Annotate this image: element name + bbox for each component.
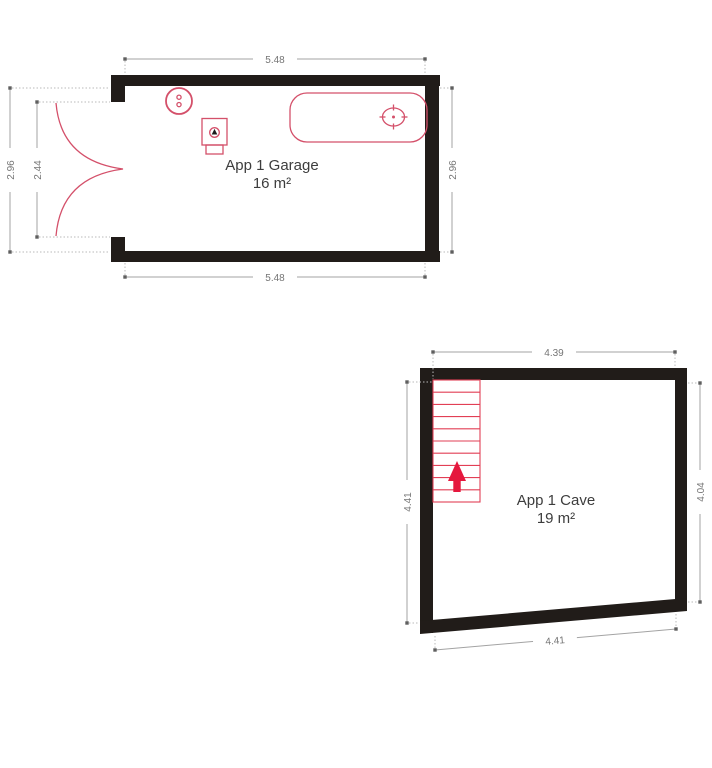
garage-wall-bottom: [111, 251, 440, 262]
cave-wall-top: [420, 368, 687, 380]
cave-room-area: 19 m²: [537, 510, 575, 527]
garage-wall-left-lower: [111, 237, 125, 262]
cave-wall-bottom: [420, 598, 687, 634]
cave-room-title: App 1 Cave: [517, 492, 595, 509]
dimension-label: 4.04: [696, 482, 707, 502]
dimension-label: 2.44: [33, 160, 44, 180]
garage-wall-top: [111, 75, 440, 86]
floor-plan-canvas: 5.48 5.48 2.96: [0, 0, 712, 768]
garage-dimension-left-inner: 2.44: [31, 100, 110, 238]
dimension-label: 2.96: [448, 160, 459, 180]
garage-dimension-top: 5.48: [123, 52, 426, 74]
dimension-label: 5.48: [265, 273, 285, 284]
cave-dimension-right: 4.04: [688, 381, 707, 603]
dimension-label: 4.41: [403, 492, 414, 512]
garage-room-area: 16 m²: [253, 175, 291, 192]
dimension-label: 5.48: [265, 55, 285, 66]
heater-icon: [202, 119, 227, 155]
dimension-label: 2.96: [6, 160, 17, 180]
bathtub-icon: [290, 93, 427, 142]
cave-floor-plan: 4.39 4.41 4.04: [401, 345, 707, 652]
boiler-icon: [166, 88, 192, 114]
floor-plan-drawing: 5.48 5.48 2.96: [0, 0, 712, 768]
cave-wall-left: [420, 368, 433, 633]
garage-dimension-bottom: 5.48: [123, 263, 426, 284]
garage-floor-plan: 5.48 5.48 2.96: [4, 52, 459, 284]
double-door-swing-icon: [56, 103, 123, 236]
garage-wall-left-upper: [111, 75, 125, 102]
garage-wall-right: [425, 75, 439, 262]
garage-dimension-right: 2.96: [440, 86, 459, 253]
cave-wall-right: [675, 368, 687, 608]
dimension-label: 4.39: [544, 348, 564, 359]
garage-room-title: App 1 Garage: [225, 157, 318, 174]
dimension-label: 4.41: [545, 635, 566, 648]
